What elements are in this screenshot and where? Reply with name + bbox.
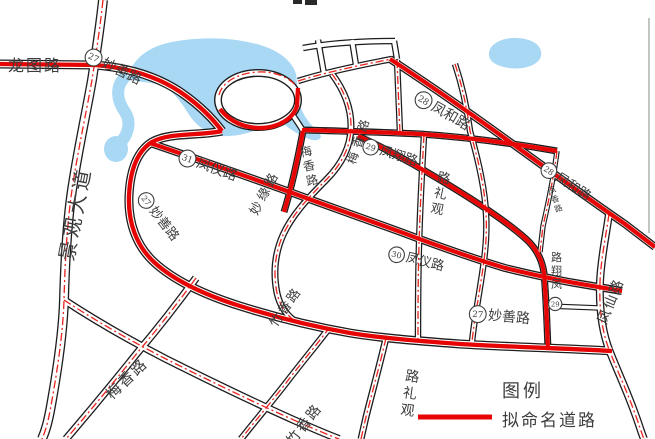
label-fenghe-road-28-east: 28凤和路 <box>538 160 594 204</box>
river <box>118 75 128 142</box>
road-naming-map: 龙图路27妙善路31凤仪路27妙善路妙缘路梅香路梅香路28凤和路29凤翔路观礼路… <box>0 0 655 439</box>
legend: 图例 拟命名道路 <box>418 381 597 431</box>
svg-text:29: 29 <box>551 300 560 308</box>
legend-title: 图例 <box>502 381 544 402</box>
label-fengyi-road-31: 31凤仪路 <box>177 148 240 185</box>
label-longtu-road: 龙图路 <box>8 56 62 75</box>
svg-text:梅香路: 梅香路 <box>299 143 320 189</box>
named-road-fenghe <box>390 59 655 247</box>
svg-text:妙善路: 妙善路 <box>146 203 183 244</box>
pond-northeast <box>489 38 541 69</box>
svg-text:27: 27 <box>472 310 484 321</box>
legend-item-label: 拟命名道路 <box>502 411 597 431</box>
label-fengxiang-road-29-west: 29凤翔路 <box>361 137 420 169</box>
svg-text:凤翔路: 凤翔路 <box>551 251 562 291</box>
svg-text:景观大道: 景观大道 <box>54 164 96 263</box>
label-meixiang-road-mid: 梅香路 <box>299 143 320 189</box>
svg-text:观礼路: 观礼路 <box>399 368 420 420</box>
map-canvas: 龙图路27妙善路31凤仪路27妙善路妙缘路梅香路梅香路28凤和路29凤翔路观礼路… <box>0 0 655 439</box>
svg-text:妙善路: 妙善路 <box>487 308 530 328</box>
label-fengxiang-road-29-south: 29凤翔路 <box>549 251 562 310</box>
cropped-title-fragment <box>293 0 317 5</box>
label-miaoshan-road-27-west: 27妙善路 <box>135 190 183 245</box>
svg-text:凤翔路: 凤翔路 <box>378 143 420 170</box>
svg-text:凤仪路: 凤仪路 <box>404 250 446 275</box>
label-jingguan-avenue: 景观大道 <box>54 164 96 263</box>
svg-text:凤仪路: 凤仪路 <box>194 155 239 184</box>
label-miaoshan-road-27-south: 27妙善路 <box>469 305 531 327</box>
label-guanli-road-south: 观礼路 <box>399 368 420 420</box>
pond <box>104 136 128 162</box>
svg-text:龙图路: 龙图路 <box>8 56 62 75</box>
